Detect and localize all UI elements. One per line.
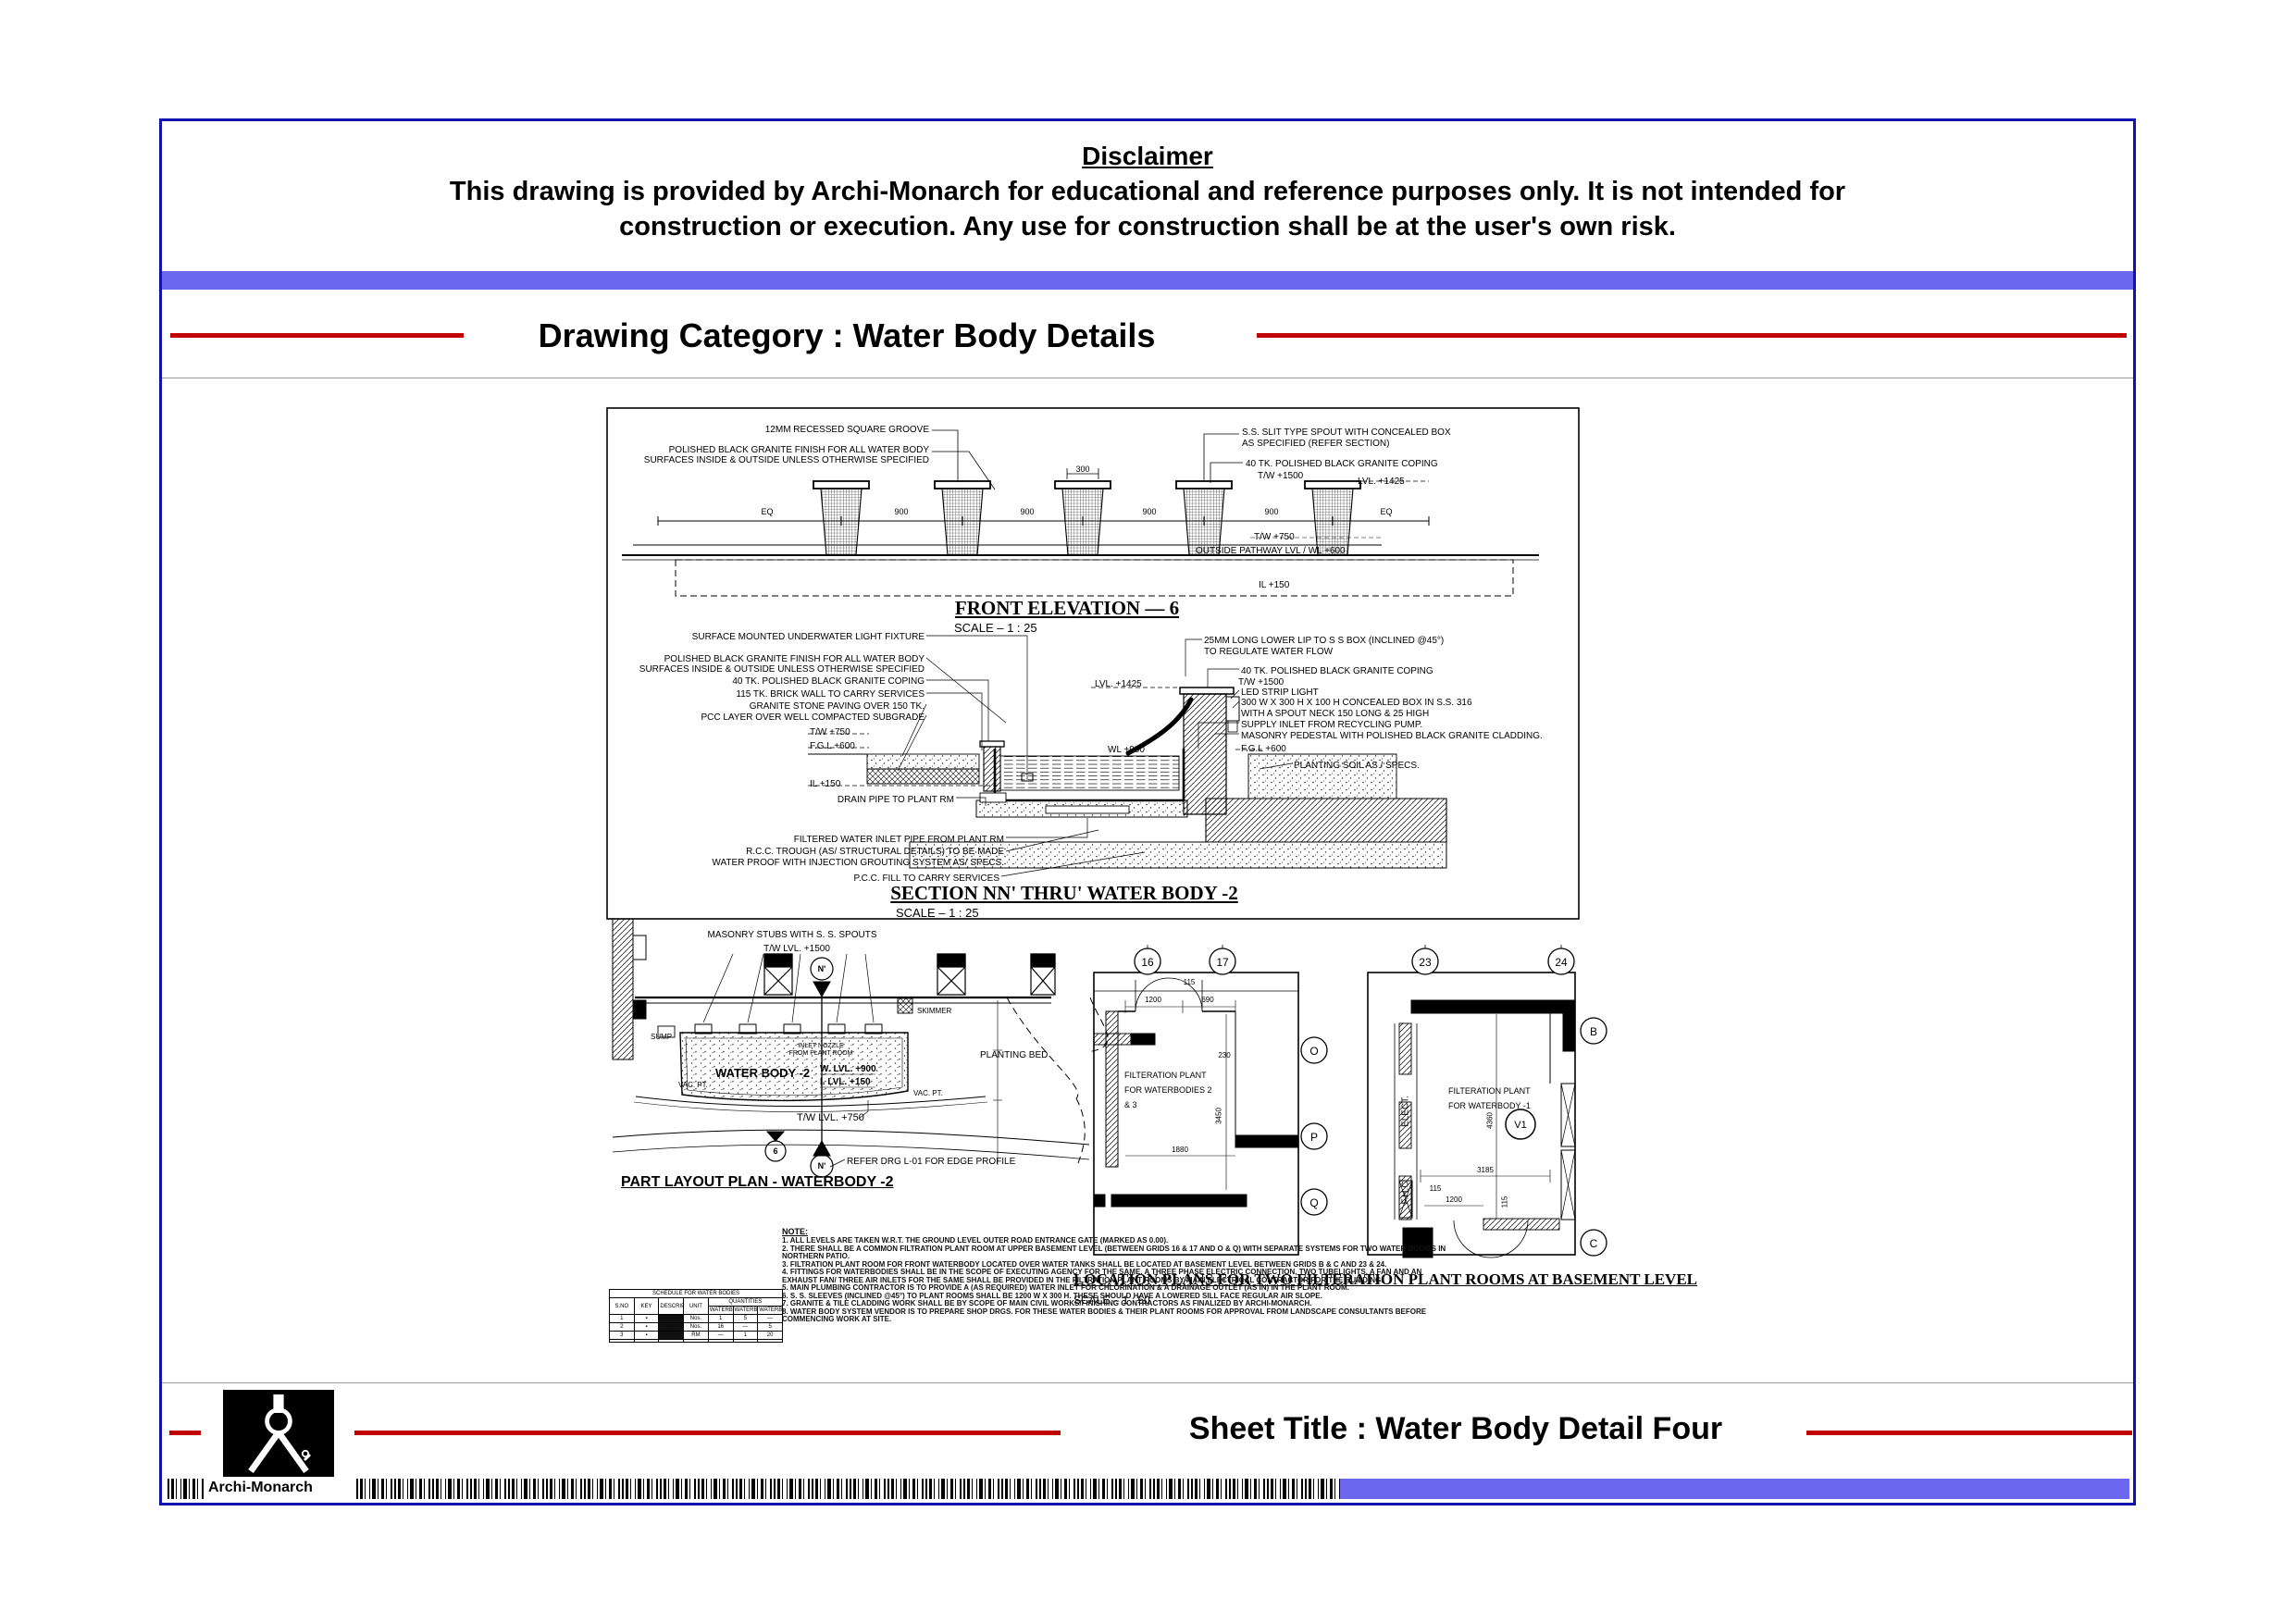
- table-row-sno: 2: [610, 1323, 635, 1332]
- sec-label-soil: PLANTING SOIL AS / SPECS.: [1294, 761, 1420, 771]
- sheet-title-rule-right: [1806, 1431, 2132, 1435]
- table-title: SCHEDULE FOR WATER BODIES: [610, 1290, 783, 1298]
- lp-room1-label-3: & 3: [1124, 1100, 1137, 1109]
- table-row-sno: 1: [610, 1315, 635, 1323]
- table-row-desc: (illegible): [659, 1332, 684, 1340]
- pp-marker-n-bottom: N': [818, 1161, 826, 1171]
- sec-label-rcc-2: WATER PROOF WITH INJECTION GROUTING SYST…: [712, 858, 1004, 868]
- sec-label-coping: 40 TK. POLISHED BLACK GRANITE COPING: [732, 676, 925, 687]
- pp-title: PART LAYOUT PLAN - WATERBODY -2: [621, 1174, 894, 1191]
- sec-label-paving: GRANITE STONE PAVING OVER 150 TK.: [750, 701, 925, 712]
- lp-grid-q: Q: [1309, 1197, 1318, 1209]
- pp-marker-6: 6: [773, 1146, 777, 1156]
- table-row-key: ▪: [634, 1323, 659, 1332]
- table-subheader: WATERBODY -1: [708, 1307, 733, 1315]
- archi-monarch-logo: [223, 1390, 334, 1477]
- fe-dim-eq-right: EQ: [1380, 507, 1392, 516]
- fe-dim-eq-left: EQ: [761, 507, 773, 516]
- table-header: DESCRIPTION: [659, 1298, 684, 1315]
- table-header: UNIT: [684, 1298, 709, 1315]
- sec-label-neck: WITH A SPOUT NECK 150 LONG & 25 HIGH: [1241, 709, 1429, 719]
- notes-block: 1. ALL LEVELS ARE TAKEN W.R.T. THE GROUN…: [782, 1237, 1452, 1324]
- lp-grid-o: O: [1309, 1046, 1318, 1058]
- table-row-sno: [610, 1340, 635, 1343]
- table-row-key: [634, 1340, 659, 1343]
- fe-label-groove: 12MM RECESSED SQUARE GROOVE: [765, 425, 929, 435]
- fe-dim-900-4: 900: [1264, 507, 1278, 516]
- fe-level-tw1500: T/W +1500: [1258, 471, 1303, 481]
- pp-label-planting: PLANTING BED: [980, 1050, 1048, 1060]
- table-row-qty: [758, 1340, 783, 1343]
- lp-dim-690: 690: [1201, 997, 1213, 1005]
- table-row-key: ▪: [634, 1332, 659, 1340]
- lp-dim-115-r2: 115: [1502, 1196, 1510, 1208]
- sheet-title-rule-dash: [169, 1431, 201, 1435]
- sec-level-tw750: T/W +750: [810, 727, 850, 737]
- sec-scale: SCALE – 1 : 25: [896, 907, 979, 921]
- sec-label-rcc-1: R.C.C. TROUGH (AS/ STRUCTURAL DETAILS) T…: [746, 847, 1004, 857]
- table-row-qty: 1: [733, 1332, 758, 1340]
- lp-fhc: F.H.C: [1400, 1182, 1410, 1205]
- lp-dim-3450: 3450: [1216, 1108, 1224, 1124]
- fe-dim-900-3: 900: [1142, 507, 1156, 516]
- table-row-unit: RM: [684, 1332, 709, 1340]
- sec-label-filtered: FILTERED WATER INLET PIPE FROM PLANT RM: [794, 835, 1004, 845]
- table-row-qty: —: [733, 1323, 758, 1332]
- table-subheader: WATERBODY -2: [733, 1307, 758, 1315]
- sec-label-lip-2: TO REGULATE WATER FLOW: [1204, 647, 1333, 657]
- table-row-key: ▪: [634, 1315, 659, 1323]
- pp-level-tw1500: T/W LVL. +1500: [763, 944, 830, 954]
- sec-label-coping-right: 40 TK. POLISHED BLACK GRANITE COPING: [1241, 666, 1433, 676]
- table-row-qty: 16: [708, 1323, 733, 1332]
- table-row-unit: Nos.: [684, 1323, 709, 1332]
- fe-scale: SCALE – 1 : 25: [954, 622, 1037, 636]
- sec-level-fgl600-left: F.G.L +600: [810, 741, 855, 751]
- sec-label-box: 300 W X 300 H X 100 H CONCEALED BOX IN S…: [1241, 698, 1472, 708]
- lp-dim-3185: 3185: [1477, 1167, 1494, 1175]
- fe-level-il150: IL +150: [1259, 580, 1289, 590]
- lp-grid-b: B: [1590, 1026, 1597, 1038]
- lp-dim-4360: 4360: [1487, 1112, 1496, 1129]
- table-subheader: WATERBODY -3: [758, 1307, 783, 1315]
- table-row-qty: 5: [733, 1315, 758, 1323]
- table-row-qty: —: [758, 1315, 783, 1323]
- lp-room2-label-1: FILTERATION PLANT: [1448, 1086, 1531, 1096]
- fe-label-coping: 40 TK. POLISHED BLACK GRANITE COPING: [1246, 459, 1438, 469]
- table-row-sno: 3: [610, 1332, 635, 1340]
- table-row-qty: [708, 1340, 733, 1343]
- sec-label-granite-1: POLISHED BLACK GRANITE FINISH FOR ALL WA…: [664, 654, 925, 664]
- lp-room1-label-2: FOR WATERBODIES 2: [1124, 1085, 1212, 1095]
- pp-label-vac-right: VAC. PT.: [913, 1090, 943, 1098]
- table-row-desc: (illegible): [659, 1315, 684, 1323]
- sec-label-light: SURFACE MOUNTED UNDERWATER LIGHT FIXTURE: [692, 632, 925, 642]
- lp-dim-230: 230: [1218, 1052, 1230, 1060]
- table-row-desc: (illegible): [659, 1323, 684, 1332]
- sheet-title: Sheet Title : Water Body Detail Four: [1189, 1411, 1722, 1447]
- table-row-desc: [659, 1340, 684, 1343]
- lp-v1: V1: [1514, 1120, 1526, 1131]
- table-row-qty: 20: [758, 1332, 783, 1340]
- sheet-border: Disclaimer This drawing is provided by A…: [159, 118, 2136, 1505]
- lp-elect: ELECT.: [1400, 1096, 1410, 1127]
- lp-dim-1880: 1880: [1172, 1146, 1188, 1155]
- fe-label-spout-2: AS SPECIFIED (REFER SECTION): [1242, 439, 1389, 449]
- lp-room2-label-2: FOR WATERBODY -1: [1448, 1101, 1531, 1110]
- notes-heading: NOTE:: [782, 1227, 808, 1236]
- pp-label-refer: REFER DRG L-01 FOR EDGE PROFILE: [847, 1157, 1015, 1167]
- lp-grid-c: C: [1590, 1238, 1598, 1250]
- sec-level-il150: IL +150: [810, 779, 840, 789]
- purple-end-bar: [1340, 1479, 2129, 1499]
- drawing-sheet-scan: Disclaimer This drawing is provided by A…: [0, 0, 2296, 1623]
- pp-label-sump: SUMP: [651, 1034, 672, 1042]
- sec-level-wl900: WL +900: [1108, 745, 1145, 755]
- brand-name: Archi-Monarch: [208, 1480, 313, 1496]
- sheet-title-rule-left: [354, 1431, 1061, 1435]
- pp-label-waterbody: WATER BODY -2: [715, 1067, 810, 1081]
- barcode-left-segment: [168, 1479, 205, 1499]
- sec-label-pedestal: MASONRY PEDESTAL WITH POLISHED BLACK GRA…: [1241, 731, 1543, 741]
- table-row-qty: —: [708, 1332, 733, 1340]
- lp-room1-label-1: FILTERATION PLANT: [1124, 1071, 1207, 1080]
- pp-label-vac-left: VAC. PT.: [678, 1082, 708, 1090]
- sec-level-tw1500: T/W +1500: [1238, 677, 1284, 688]
- compass-icon: [223, 1390, 334, 1477]
- sec-label-granite-2: SURFACES INSIDE & OUTSIDE UNLESS OTHERWI…: [639, 664, 925, 675]
- pp-marker-n-top: N': [818, 964, 826, 973]
- lp-grid-24: 24: [1555, 957, 1567, 969]
- sec-label-led: LED STRIP LIGHT: [1241, 688, 1319, 698]
- pp-label-skimmer: SKIMMER: [917, 1008, 951, 1016]
- lp-grid-p: P: [1310, 1132, 1318, 1144]
- sec-label-lip-1: 25MM LONG LOWER LIP TO S S BOX (INCLINED…: [1204, 636, 1444, 646]
- fe-title: FRONT ELEVATION — 6: [955, 598, 1179, 620]
- sec-label-drain: DRAIN PIPE TO PLANT RM: [838, 795, 954, 805]
- table-header: KEY: [634, 1298, 659, 1315]
- lp-dim-115-left: 115: [1184, 979, 1196, 987]
- pp-level-ilvl: I. LVL. +150: [820, 1077, 871, 1087]
- table-row-unit: [684, 1340, 709, 1343]
- sec-level-fgl600-right: F.G.L +600: [1241, 744, 1286, 754]
- table-row-qty: 5: [758, 1323, 783, 1332]
- sec-label-supply: SUPPLY INLET FROM RECYCLING PUMP.: [1241, 720, 1422, 730]
- lp-grid-23: 23: [1419, 957, 1431, 969]
- sec-label-pcc: PCC LAYER OVER WELL COMPACTED SUBGRADE: [701, 712, 925, 723]
- table-header: QUANTITIES: [708, 1298, 782, 1307]
- lp-dim-1200-left: 1200: [1145, 997, 1161, 1005]
- pp-level-tw750: T/W LVL. +750: [797, 1112, 864, 1123]
- table-row-qty: 1: [708, 1315, 733, 1323]
- lp-grid-16: 16: [1141, 957, 1153, 969]
- table-row-unit: Nos.: [684, 1315, 709, 1323]
- footer-separator-line: [162, 1382, 2133, 1383]
- sec-title: SECTION NN' THRU' WATER BODY -2: [890, 883, 1238, 905]
- fe-level-tw750: T/W +750: [1254, 532, 1295, 542]
- fe-dim-900-2: 900: [1020, 507, 1034, 516]
- lp-dim-1200-right: 1200: [1446, 1196, 1462, 1205]
- fe-label-granite-1: POLISHED BLACK GRANITE FINISH FOR ALL WA…: [669, 445, 929, 455]
- sec-level-lvl1425: LVL. +1425: [1095, 679, 1142, 689]
- fe-level-lvl1425: LVL. +1425: [1358, 477, 1405, 487]
- sec-label-brick: 115 TK. BRICK WALL TO CARRY SERVICES: [736, 689, 925, 700]
- fe-label-pathway: OUTSIDE PATHWAY LVL / WL +600: [1196, 546, 1346, 556]
- pp-label-inlet-2: FROM PLANT ROOM: [789, 1050, 853, 1058]
- fe-label-spout-1: S.S. SLIT TYPE SPOUT WITH CONCEALED BOX: [1242, 427, 1451, 438]
- fe-dim-900-1: 900: [894, 507, 908, 516]
- schedule-table: SCHEDULE FOR WATER BODIESS.NOKEYDESCRIPT…: [609, 1289, 783, 1343]
- pp-level-wlvl: W. LVL. +900: [820, 1064, 876, 1074]
- fe-dim-300: 300: [1075, 465, 1089, 474]
- table-header: S.NO: [610, 1298, 635, 1315]
- lp-dim-115-r1: 115: [1430, 1185, 1442, 1194]
- lp-grid-17: 17: [1216, 957, 1228, 969]
- pp-label-stubs: MASONRY STUBS WITH S. S. SPOUTS: [708, 930, 877, 940]
- fe-label-granite-2: SURFACES INSIDE & OUTSIDE UNLESS OTHERWI…: [644, 455, 929, 465]
- barcode: [356, 1479, 1340, 1499]
- pp-label-inlet-1: INLET NOZZLE: [798, 1043, 843, 1050]
- table-row-qty: [733, 1340, 758, 1343]
